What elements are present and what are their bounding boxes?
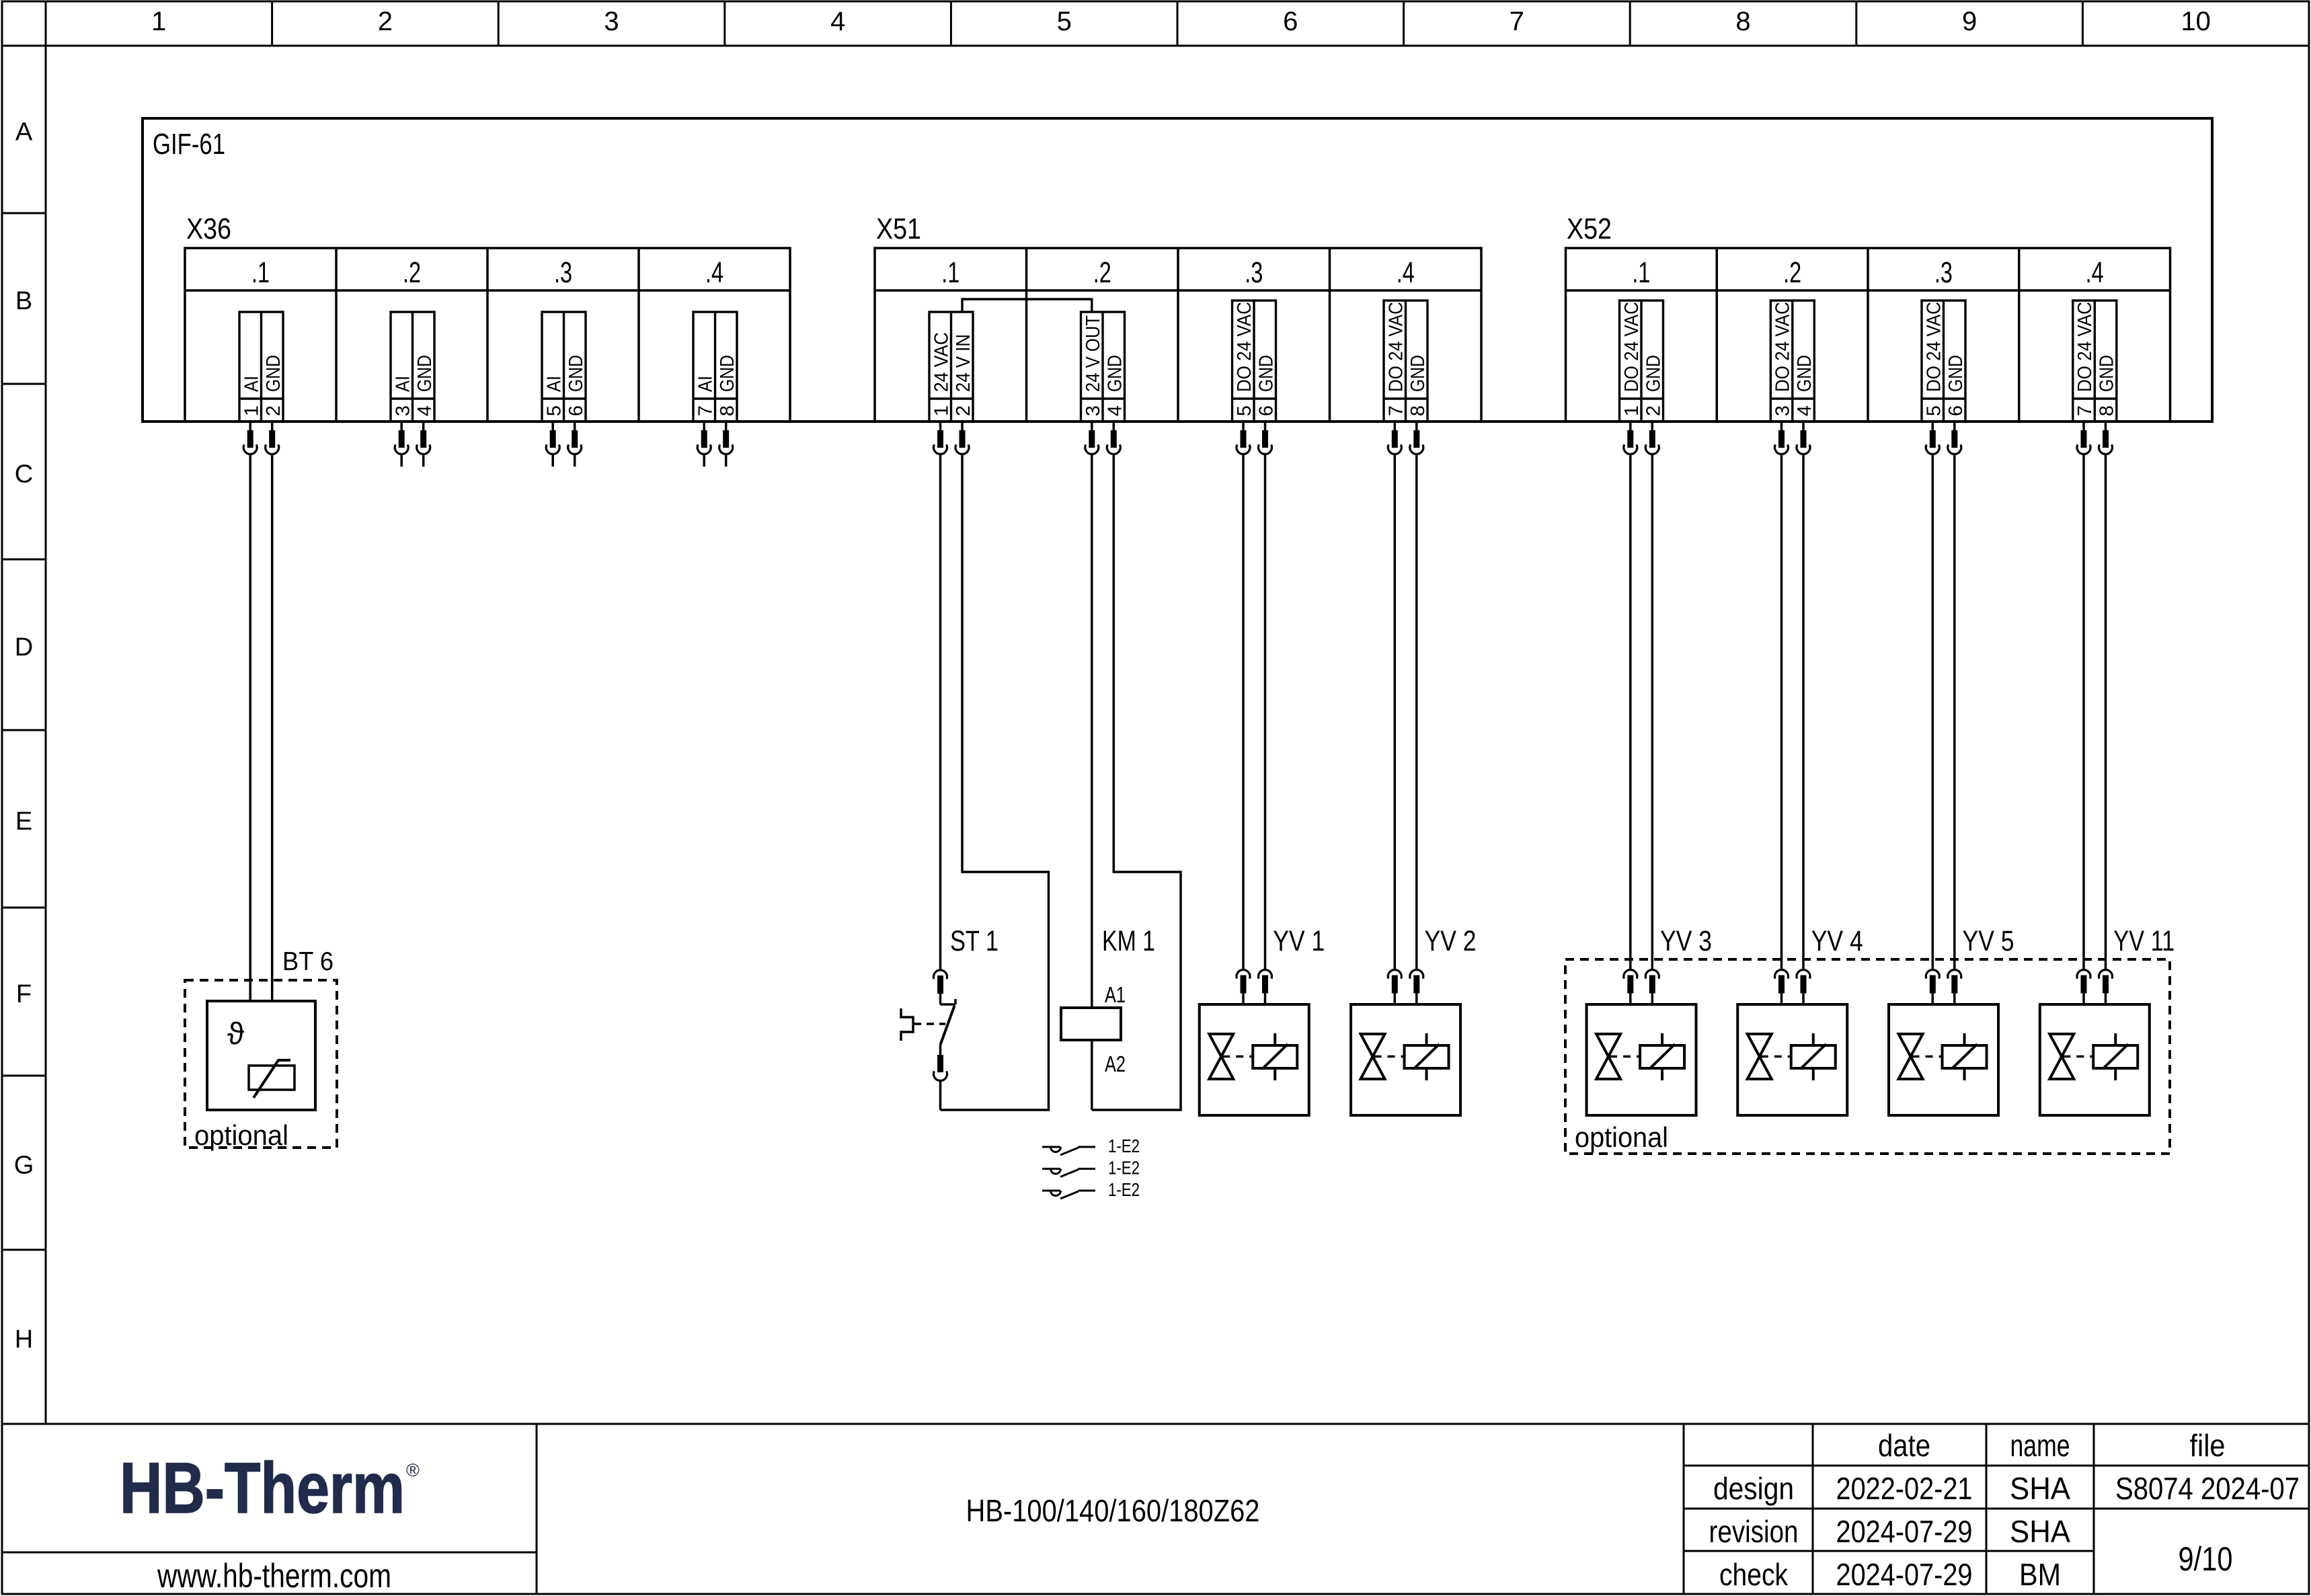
svg-text:5: 5 — [1923, 405, 1945, 416]
svg-text:GND: GND — [1407, 355, 1429, 392]
svg-text:GIF-61: GIF-61 — [153, 128, 225, 161]
svg-text:24 V OUT: 24 V OUT — [1083, 315, 1104, 392]
svg-text:24 V IN: 24 V IN — [953, 334, 974, 392]
svg-text:6: 6 — [1945, 405, 1967, 416]
svg-text:3: 3 — [392, 405, 414, 416]
svg-text:YV 3: YV 3 — [1660, 925, 1712, 957]
svg-text:3: 3 — [1772, 405, 1794, 416]
svg-text:X52: X52 — [1567, 212, 1612, 245]
svg-text:YV 5: YV 5 — [1963, 925, 2014, 957]
svg-text:GND: GND — [263, 355, 284, 392]
svg-text:GND: GND — [1945, 355, 1967, 392]
svg-text:.3: .3 — [1245, 256, 1263, 289]
svg-text:4: 4 — [830, 7, 845, 36]
svg-text:1-E2: 1-E2 — [1108, 1158, 1140, 1179]
svg-text:optional: optional — [1575, 1121, 1668, 1153]
svg-text:GND: GND — [414, 355, 436, 392]
svg-text:7: 7 — [1385, 405, 1407, 416]
svg-text:YV 11: YV 11 — [2113, 925, 2175, 957]
svg-text:3: 3 — [604, 7, 619, 36]
svg-text:24 VAC: 24 VAC — [931, 332, 952, 392]
svg-text:5: 5 — [543, 405, 565, 416]
svg-text:2: 2 — [953, 405, 974, 416]
svg-text:5: 5 — [1057, 7, 1072, 36]
svg-text:name: name — [2010, 1428, 2070, 1463]
svg-text:HB-Therm: HB-Therm — [120, 1447, 405, 1528]
svg-text:.1: .1 — [1632, 256, 1650, 289]
svg-text:1: 1 — [151, 7, 166, 36]
svg-text:4: 4 — [414, 405, 436, 416]
svg-text:2: 2 — [263, 405, 284, 416]
svg-text:7: 7 — [695, 405, 716, 416]
svg-text:X51: X51 — [876, 212, 921, 245]
svg-text:.2: .2 — [1783, 256, 1801, 289]
svg-text:1: 1 — [1621, 405, 1643, 416]
svg-text:D: D — [15, 633, 33, 662]
svg-text:YV 1: YV 1 — [1273, 925, 1325, 957]
svg-text:S8074 2024-07: S8074 2024-07 — [2115, 1471, 2300, 1506]
svg-text:5: 5 — [1234, 405, 1255, 416]
svg-text:.1: .1 — [251, 256, 270, 289]
svg-text:8: 8 — [717, 405, 738, 416]
svg-text:AI: AI — [392, 376, 414, 392]
svg-text:BM: BM — [2019, 1557, 2061, 1592]
svg-text:3: 3 — [1083, 405, 1104, 416]
svg-text:8: 8 — [1735, 7, 1750, 36]
svg-text:GND: GND — [2097, 355, 2118, 392]
svg-text:optional: optional — [194, 1119, 288, 1151]
svg-text:G: G — [14, 1152, 34, 1180]
svg-text:.2: .2 — [403, 256, 421, 289]
svg-text:KM 1: KM 1 — [1102, 925, 1155, 957]
svg-text:6: 6 — [1283, 7, 1298, 36]
svg-text:A2: A2 — [1105, 1051, 1126, 1076]
svg-text:DO 24 VAC: DO 24 VAC — [1385, 302, 1407, 392]
svg-text:E: E — [15, 807, 32, 836]
svg-text:H: H — [15, 1326, 33, 1354]
svg-text:2024-07-29: 2024-07-29 — [1836, 1514, 1973, 1549]
svg-text:SHA: SHA — [2010, 1471, 2070, 1506]
svg-text:7: 7 — [1510, 7, 1524, 36]
svg-text:C: C — [15, 461, 33, 489]
svg-text:GND: GND — [1794, 355, 1815, 392]
svg-text:ϑ: ϑ — [227, 1016, 244, 1051]
svg-text:DO 24 VAC: DO 24 VAC — [1621, 302, 1643, 392]
svg-text:.2: .2 — [1093, 256, 1111, 289]
svg-text:file: file — [2190, 1428, 2226, 1463]
svg-text:SHA: SHA — [2010, 1514, 2070, 1549]
svg-text:®: ® — [406, 1460, 420, 1480]
svg-text:GND: GND — [1255, 355, 1277, 392]
svg-text:2: 2 — [1643, 405, 1664, 416]
svg-text:8: 8 — [1407, 405, 1429, 416]
svg-text:1: 1 — [241, 405, 262, 416]
svg-text:GND: GND — [565, 355, 587, 392]
svg-text:DO 24 VAC: DO 24 VAC — [1923, 302, 1945, 392]
svg-text:GND: GND — [1104, 355, 1126, 392]
svg-text:check: check — [1719, 1557, 1789, 1592]
svg-text:B: B — [15, 287, 32, 315]
svg-text:F: F — [16, 980, 32, 1008]
svg-text:YV 4: YV 4 — [1811, 925, 1863, 957]
svg-text:.4: .4 — [2086, 256, 2104, 289]
svg-text:2022-02-21: 2022-02-21 — [1836, 1471, 1973, 1506]
svg-text:DO 24 VAC: DO 24 VAC — [2074, 302, 2096, 392]
svg-text:.3: .3 — [554, 256, 572, 289]
svg-text:6: 6 — [1255, 405, 1277, 416]
svg-text:1-E2: 1-E2 — [1108, 1135, 1140, 1156]
svg-text:4: 4 — [1794, 405, 1815, 416]
svg-text:DO 24 VAC: DO 24 VAC — [1772, 302, 1794, 392]
svg-text:1-E2: 1-E2 — [1108, 1179, 1140, 1200]
svg-text:X36: X36 — [186, 212, 231, 245]
svg-text:GND: GND — [1643, 355, 1664, 392]
svg-text:GND: GND — [717, 355, 738, 392]
svg-text:YV 2: YV 2 — [1425, 925, 1477, 957]
svg-text:AI: AI — [241, 376, 262, 392]
svg-text:1: 1 — [931, 405, 952, 416]
svg-text:DO 24 VAC: DO 24 VAC — [1234, 302, 1255, 392]
svg-text:4: 4 — [1104, 405, 1126, 416]
svg-text:HB-100/140/160/180Z62: HB-100/140/160/180Z62 — [966, 1493, 1260, 1528]
svg-text:.4: .4 — [705, 256, 723, 289]
svg-text:2024-07-29: 2024-07-29 — [1836, 1557, 1973, 1592]
svg-text:7: 7 — [2074, 405, 2096, 416]
svg-text:.1: .1 — [941, 256, 959, 289]
svg-text:AI: AI — [543, 376, 565, 392]
svg-text:.4: .4 — [1397, 256, 1415, 289]
svg-text:8: 8 — [2097, 405, 2118, 416]
svg-text:revision: revision — [1709, 1514, 1799, 1549]
svg-text:9: 9 — [1962, 7, 1977, 36]
svg-text:6: 6 — [565, 405, 587, 416]
svg-text:A: A — [15, 118, 33, 147]
svg-text:A1: A1 — [1105, 982, 1126, 1007]
svg-text:.3: .3 — [1934, 256, 1953, 289]
svg-text:10: 10 — [2181, 7, 2211, 36]
svg-text:date: date — [1878, 1428, 1930, 1463]
svg-text:design: design — [1713, 1471, 1794, 1506]
svg-text:BT 6: BT 6 — [282, 947, 334, 976]
svg-text:9/10: 9/10 — [2179, 1540, 2233, 1578]
svg-text:www.hb-therm.com: www.hb-therm.com — [157, 1557, 391, 1595]
svg-text:ST 1: ST 1 — [950, 925, 998, 957]
svg-text:AI: AI — [695, 376, 716, 392]
svg-text:2: 2 — [378, 7, 393, 36]
